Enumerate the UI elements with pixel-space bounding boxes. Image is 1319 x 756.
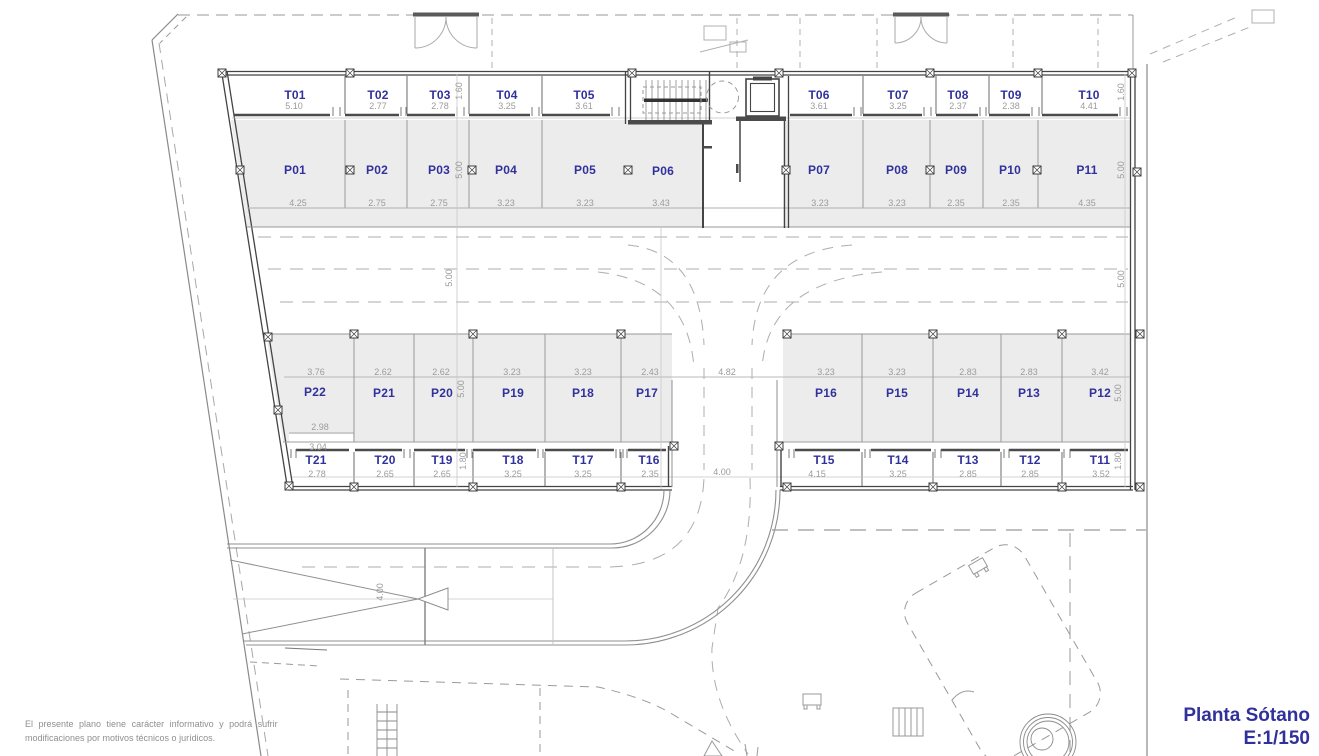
- storage-room-label-T17: T17: [572, 453, 593, 467]
- parking-space-label-P09: P09: [945, 163, 967, 177]
- disclaimer-line-2: modificaciones por motivos técnicos o ju…: [25, 732, 278, 746]
- parking-space-label-P07: P07: [808, 163, 830, 177]
- storage-room-dim-T14: 3.25: [889, 469, 907, 479]
- parking-space-dim-P07: 3.23: [811, 198, 829, 208]
- storage-room-dim-T07: 3.25: [889, 101, 907, 111]
- storage-room-dim-T02: 2.77: [369, 101, 387, 111]
- storage-room-label-T14: T14: [887, 453, 908, 467]
- parking-space-dim-P22: 3.76: [307, 367, 325, 377]
- dimension-label: 5.00: [444, 269, 454, 287]
- storage-room-dim-T01: 5.10: [285, 101, 303, 111]
- dimension-label: 5.00: [1113, 384, 1123, 402]
- parking-space-label-P20: P20: [431, 386, 453, 400]
- parking-space-dim-P15: 3.23: [888, 367, 906, 377]
- storage-room-dim-T19: 2.65: [433, 469, 451, 479]
- landscape-reference: [250, 530, 1146, 756]
- storage-room-label-T10: T10: [1078, 88, 1099, 102]
- parking-space-label-P03: P03: [428, 163, 450, 177]
- plan-drawing: [0, 0, 1319, 756]
- storage-room-label-T16: T16: [638, 453, 659, 467]
- storage-room-label-T18: T18: [502, 453, 523, 467]
- parking-space-label-P11: P11: [1076, 163, 1097, 177]
- storage-room-label-T19: T19: [431, 453, 452, 467]
- dimension-label: 2.98: [311, 422, 329, 432]
- parking-space-dim-P18: 3.23: [574, 367, 592, 377]
- storage-room-label-T05: T05: [573, 88, 594, 102]
- parking-space-label-P06: P06: [652, 164, 674, 178]
- bench-icon: [803, 694, 821, 709]
- parking-space-label-P19: P19: [502, 386, 524, 400]
- storage-room-dim-T18: 3.25: [504, 469, 522, 479]
- elevator: [736, 77, 786, 122]
- storage-room-label-T08: T08: [947, 88, 968, 102]
- title-block: Planta Sótano E:1/150: [1183, 705, 1310, 750]
- parking-space-label-P21: P21: [373, 386, 395, 400]
- parking-space-dim-P14: 2.83: [959, 367, 977, 377]
- storage-bottom-row: [291, 449, 1130, 486]
- parking-space-dim-P05: 3.23: [576, 198, 594, 208]
- parking-space-label-P14: P14: [957, 386, 979, 400]
- parking-space-dim-P10: 2.35: [1002, 198, 1020, 208]
- storage-room-label-T20: T20: [374, 453, 395, 467]
- plan-scale: E:1/150: [1183, 728, 1310, 750]
- storage-room-label-T15: T15: [813, 453, 834, 467]
- parking-space-dim-P04: 3.23: [497, 198, 515, 208]
- storage-room-dim-T03: 2.78: [431, 101, 449, 111]
- dimension-label: 1.80: [1113, 452, 1123, 470]
- parking-space-dim-P12: 3.42: [1091, 367, 1109, 377]
- storage-room-label-T12: T12: [1019, 453, 1040, 467]
- parking-space-label-P04: P04: [495, 163, 517, 177]
- parking-space-label-P15: P15: [886, 386, 908, 400]
- dimension-label: 5.00: [1116, 270, 1126, 288]
- parking-space-dim-P16: 3.23: [817, 367, 835, 377]
- ramp-arrow: [230, 560, 448, 634]
- storage-room-dim-T04: 3.25: [498, 101, 516, 111]
- parking-space-dim-P17: 2.43: [641, 367, 659, 377]
- parking-space-label-P22: P22: [304, 385, 326, 399]
- storage-room-dim-T06: 3.61: [810, 101, 828, 111]
- parking-space-label-P16: P16: [815, 386, 837, 400]
- storage-room-dim-T13: 2.85: [959, 469, 977, 479]
- storage-room-dim-T15: 4.15: [808, 469, 826, 479]
- storage-room-label-T06: T06: [808, 88, 829, 102]
- dimension-label: 1.60: [454, 82, 464, 100]
- plan-title: Planta Sótano: [1183, 705, 1310, 727]
- parking-space-dim-P19: 3.23: [503, 367, 521, 377]
- dimension-label: 3.04: [309, 442, 327, 452]
- storage-room-label-T03: T03: [429, 88, 450, 102]
- storage-room-label-T01: T01: [284, 88, 305, 102]
- entrance-doors: [413, 13, 949, 53]
- parking-space-label-P18: P18: [572, 386, 594, 400]
- parking-space-label-P01: P01: [284, 163, 306, 177]
- storage-room-dim-T12: 2.85: [1021, 469, 1039, 479]
- storage-room-dim-T08: 2.37: [949, 101, 967, 111]
- parking-space-label-P17: P17: [636, 386, 658, 400]
- storage-room-dim-T17: 3.25: [574, 469, 592, 479]
- parking-space-dim-P06: 3.43: [652, 198, 670, 208]
- pergola-icon: [893, 708, 923, 736]
- floor-plan: Planta Sótano E:1/150 El presente plano …: [0, 0, 1319, 756]
- parking-space-dim-P20: 2.62: [432, 367, 450, 377]
- storage-room-label-T13: T13: [957, 453, 978, 467]
- parking-space-label-P12: P12: [1089, 386, 1111, 400]
- stair-core: [626, 71, 739, 125]
- parking-space-dim-P09: 2.35: [947, 198, 965, 208]
- storage-room-dim-T11: 3.52: [1092, 469, 1110, 479]
- dimension-label: 4.00: [713, 467, 731, 477]
- dimension-label: 4.82: [718, 367, 736, 377]
- dimension-label: 5.00: [1116, 161, 1126, 179]
- storage-room-label-T09: T09: [1000, 88, 1021, 102]
- storage-room-dim-T20: 2.65: [376, 469, 394, 479]
- storage-room-label-T07: T07: [887, 88, 908, 102]
- dimension-label: 5.00: [456, 380, 466, 398]
- parking-space-dim-P08: 3.23: [888, 198, 906, 208]
- parking-space-dim-P13: 2.83: [1020, 367, 1038, 377]
- drive-aisle: [258, 237, 1128, 754]
- disclaimer: El presente plano tiene carácter informa…: [25, 718, 278, 746]
- storage-room-dim-T05: 3.61: [575, 101, 593, 111]
- tree-icon: [1020, 714, 1076, 756]
- storage-room-label-T04: T04: [496, 88, 517, 102]
- storage-room-label-T11: T11: [1090, 453, 1111, 467]
- storage-room-dim-T10: 4.41: [1080, 101, 1098, 111]
- dimension-label: 4.00: [375, 583, 385, 601]
- parking-space-dim-P03: 2.75: [430, 198, 448, 208]
- dimension-label: 5.00: [454, 161, 464, 179]
- parking-space-label-P05: P05: [574, 163, 596, 177]
- parking-space-label-P02: P02: [366, 163, 388, 177]
- parking-space-dim-P11: 4.35: [1078, 198, 1096, 208]
- storage-room-label-T02: T02: [367, 88, 388, 102]
- dimension-label: 1.60: [1116, 83, 1126, 101]
- stair-down-icon: [377, 704, 397, 756]
- parking-space-label-P13: P13: [1018, 386, 1040, 400]
- disclaimer-line-1: El presente plano tiene carácter informa…: [25, 718, 278, 732]
- parking-space-dim-P02: 2.75: [368, 198, 386, 208]
- storage-room-label-T21: T21: [305, 453, 326, 467]
- dimension-label: 1.80: [458, 452, 468, 470]
- parking-space-dim-P21: 2.62: [374, 367, 392, 377]
- parking-space-label-P10: P10: [999, 163, 1021, 177]
- storage-room-dim-T16: 2.35: [641, 469, 659, 479]
- parking-space-label-P08: P08: [886, 163, 908, 177]
- storage-room-dim-T09: 2.38: [1002, 101, 1020, 111]
- storage-room-dim-T21: 2.78: [308, 469, 326, 479]
- parking-space-dim-P01: 4.25: [289, 198, 307, 208]
